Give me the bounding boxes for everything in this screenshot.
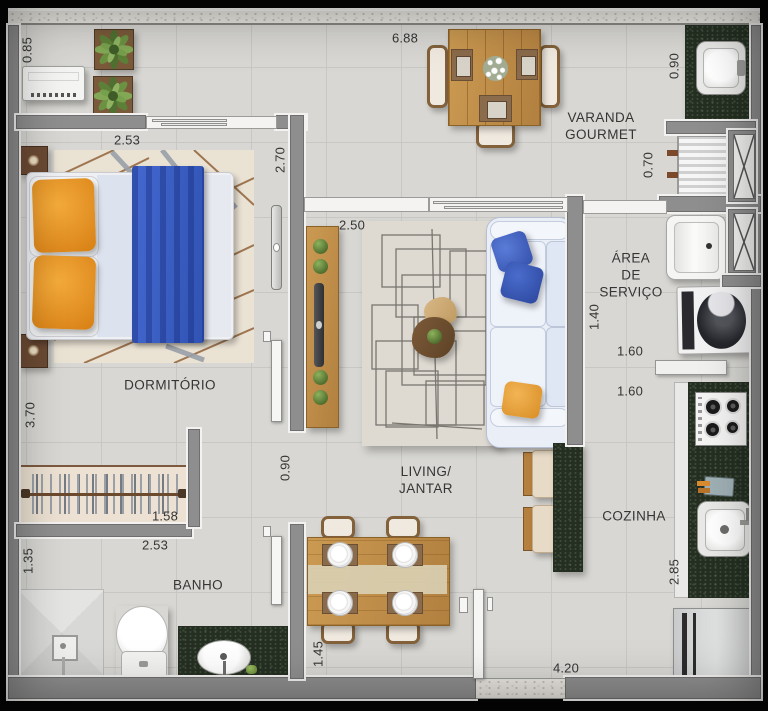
- bathroom-door-leaf: [271, 536, 282, 605]
- room-label-banho: BANHO: [173, 578, 223, 595]
- flush-button: [139, 661, 148, 667]
- wall-bathroom-top: [16, 524, 192, 537]
- room-label-line: VARANDA: [565, 110, 637, 127]
- living-sliding-door: [429, 197, 568, 212]
- flower-centerpiece: [482, 54, 509, 83]
- table-runner: [308, 565, 447, 594]
- dim-hall-passage: 0.90: [278, 455, 293, 481]
- washer-control-panel: [681, 291, 694, 349]
- utensil: [697, 481, 710, 486]
- dim-closet-width: 1.58: [152, 509, 178, 524]
- faucet-icon: [737, 60, 745, 76]
- console-plant: [313, 259, 328, 274]
- plant-icon: [94, 77, 132, 115]
- dim-varanda-width: 6.88: [392, 31, 418, 46]
- kitchen-sink: [697, 501, 751, 557]
- entry-door-handle: [459, 597, 468, 613]
- exterior-wall-bottom-right: [565, 677, 761, 699]
- service-pass-opening: [583, 200, 667, 214]
- placemat: [479, 95, 512, 122]
- exterior-wall-top: [8, 8, 760, 25]
- planter-box-1: [94, 29, 134, 70]
- cooktop-stove: [695, 392, 747, 446]
- dim-varanda-height-left: 0.85: [20, 37, 35, 63]
- placemat: [387, 592, 423, 614]
- nightstand-knob: [28, 155, 39, 166]
- window-rail: [152, 119, 227, 122]
- toilet: [116, 606, 168, 678]
- console-plant: [313, 239, 328, 254]
- shower-area: [19, 589, 104, 677]
- dim-dormitorio-window: 2.70: [273, 147, 288, 173]
- console-plant: [313, 390, 328, 405]
- tv-mount: [273, 243, 280, 252]
- dim-dormitorio-width: 2.53: [114, 133, 140, 148]
- dim-jantar-clearance: 1.45: [311, 641, 326, 667]
- dim-cozinha-counter: 2.85: [667, 559, 682, 585]
- room-label-line: SERVIÇO: [599, 284, 662, 301]
- bar-stool: [523, 450, 556, 497]
- bed-throw-blanket: [132, 166, 204, 343]
- placemat-plate: [487, 101, 507, 119]
- entry-threshold: [476, 678, 565, 699]
- bathroom-sink: [197, 640, 251, 675]
- plant-icon: [95, 30, 133, 69]
- drain-dot: [60, 643, 66, 649]
- plate-icon: [327, 590, 353, 616]
- dim-churrasqueira: 0.70: [641, 152, 656, 178]
- varanda-sink-basin: [703, 48, 739, 88]
- fridge-handle: [693, 613, 696, 675]
- bedroom-door-leaf: [271, 340, 282, 422]
- orange-pillow: [501, 381, 543, 420]
- dim-banho-depth: 1.35: [21, 548, 36, 574]
- room-label-dormitorio: DORMITÓRIO: [124, 378, 216, 395]
- dim-sofa-wall: 1.40: [587, 304, 602, 330]
- room-label-area-servico: ÁREA DE SERVIÇO: [599, 251, 662, 302]
- varanda-chair-left: [427, 45, 448, 108]
- coffee-table-plant: [427, 329, 442, 344]
- orange-pillow: [32, 178, 97, 253]
- room-label-line: GOURMET: [565, 127, 637, 144]
- tub-basin: [674, 222, 719, 273]
- bedroom-door-jamb: [263, 331, 271, 342]
- bar-stool: [523, 505, 556, 552]
- dim-banho-width: 2.53: [142, 538, 168, 553]
- room-label-line: LIVING/: [399, 464, 453, 481]
- washing-machine: [676, 285, 751, 354]
- bedroom-window: [146, 116, 277, 129]
- orange-pillow: [32, 255, 97, 330]
- ac-top-line: [28, 72, 79, 81]
- closet-rod-end: [178, 489, 187, 498]
- burner-icon: [704, 398, 722, 416]
- wall-bedroom-right: [290, 115, 304, 431]
- entry-door-handle: [487, 597, 493, 611]
- utensil: [698, 488, 710, 493]
- window-rail: [433, 201, 563, 204]
- placemat-plate: [456, 56, 471, 77]
- tub-drain: [706, 243, 712, 249]
- planter-box-2: [93, 76, 133, 116]
- bed-duvet-blue-panel: [97, 175, 137, 337]
- dining-chair: [386, 516, 420, 539]
- room-label-line: JANTAR: [399, 481, 453, 498]
- grill-handle: [667, 172, 678, 178]
- air-conditioner: [22, 66, 85, 101]
- placemat-plate: [521, 56, 536, 76]
- placemat: [322, 592, 358, 614]
- bed-duvet-right: [204, 175, 231, 337]
- breakfast-bar-counter: [553, 443, 583, 572]
- ac-vents: [31, 93, 77, 97]
- dim-servico-lower: 1.60: [617, 384, 643, 399]
- dim-dormitorio-length: 3.70: [23, 402, 38, 428]
- cutting-board: [703, 476, 734, 497]
- dim-living-width: 2.50: [339, 218, 365, 233]
- entry-door-leaf: [473, 589, 484, 679]
- wall-stub-below-shaft: [722, 275, 761, 287]
- burner-icon: [725, 398, 741, 414]
- washer-drum: [697, 291, 747, 349]
- window-rail: [444, 206, 563, 209]
- kitchen-drain: [720, 525, 729, 534]
- burner-icon: [704, 421, 721, 438]
- burner-icon: [725, 420, 740, 435]
- window-rail: [161, 123, 227, 126]
- placemat: [322, 544, 358, 566]
- placemat: [516, 49, 538, 80]
- room-label-line: DE: [599, 268, 662, 285]
- plate-icon: [327, 542, 353, 568]
- wall-closet-right: [188, 429, 200, 527]
- stove-knobs: [698, 397, 702, 441]
- room-label-cozinha: COZINHA: [602, 509, 666, 526]
- room-label-varanda-gourmet: VARANDA GOURMET: [565, 110, 637, 144]
- duct-shaft-x: [733, 134, 755, 199]
- grill-handle: [667, 150, 678, 156]
- closet-rod: [30, 493, 182, 496]
- fridge-handle: [682, 613, 687, 675]
- bathroom-door-jamb: [263, 526, 271, 537]
- living-window-sill: [304, 197, 429, 212]
- dim-entry-wall: 4.20: [553, 661, 579, 676]
- toilet-tank: [121, 651, 167, 680]
- plate-icon: [392, 542, 418, 568]
- plate-icon: [392, 590, 418, 616]
- floor-plan: DORMITÓRIO BANHO LIVING/ JANTAR VARANDA …: [0, 0, 768, 711]
- shower-pipe: [62, 657, 65, 678]
- varanda-chair-right: [539, 45, 560, 108]
- sink-faucet-dot: [220, 653, 227, 660]
- sink-faucet-stem: [223, 661, 226, 677]
- towel-accent: [246, 665, 257, 674]
- exterior-wall-bottom-left: [8, 677, 476, 699]
- duct-shaft-x: [733, 213, 755, 271]
- placemat: [387, 544, 423, 566]
- nightstand: [19, 146, 48, 175]
- console-plant: [313, 370, 328, 385]
- refrigerator: [673, 608, 753, 680]
- tv-mount: [316, 321, 322, 329]
- nightstand-knob: [28, 345, 39, 356]
- shower-drain: [52, 635, 78, 661]
- room-label-living-jantar: LIVING/ JANTAR: [399, 464, 453, 498]
- closet-rod-end: [21, 489, 30, 498]
- wall-bathroom-right: [290, 524, 304, 679]
- room-label-line: ÁREA: [599, 251, 662, 268]
- living-tv: [314, 283, 324, 367]
- service-shelf: [655, 360, 727, 375]
- bedroom-tv: [271, 205, 282, 290]
- dim-varanda-sink-depth: 0.90: [667, 53, 682, 79]
- wall-bedroom-top: [16, 115, 146, 129]
- dining-chair: [321, 516, 355, 539]
- wall-sofa: [567, 196, 583, 445]
- varanda-sink: [696, 41, 746, 95]
- dim-servico-upper: 1.60: [617, 344, 643, 359]
- placemat: [451, 49, 473, 81]
- laundry-tub: [666, 215, 726, 280]
